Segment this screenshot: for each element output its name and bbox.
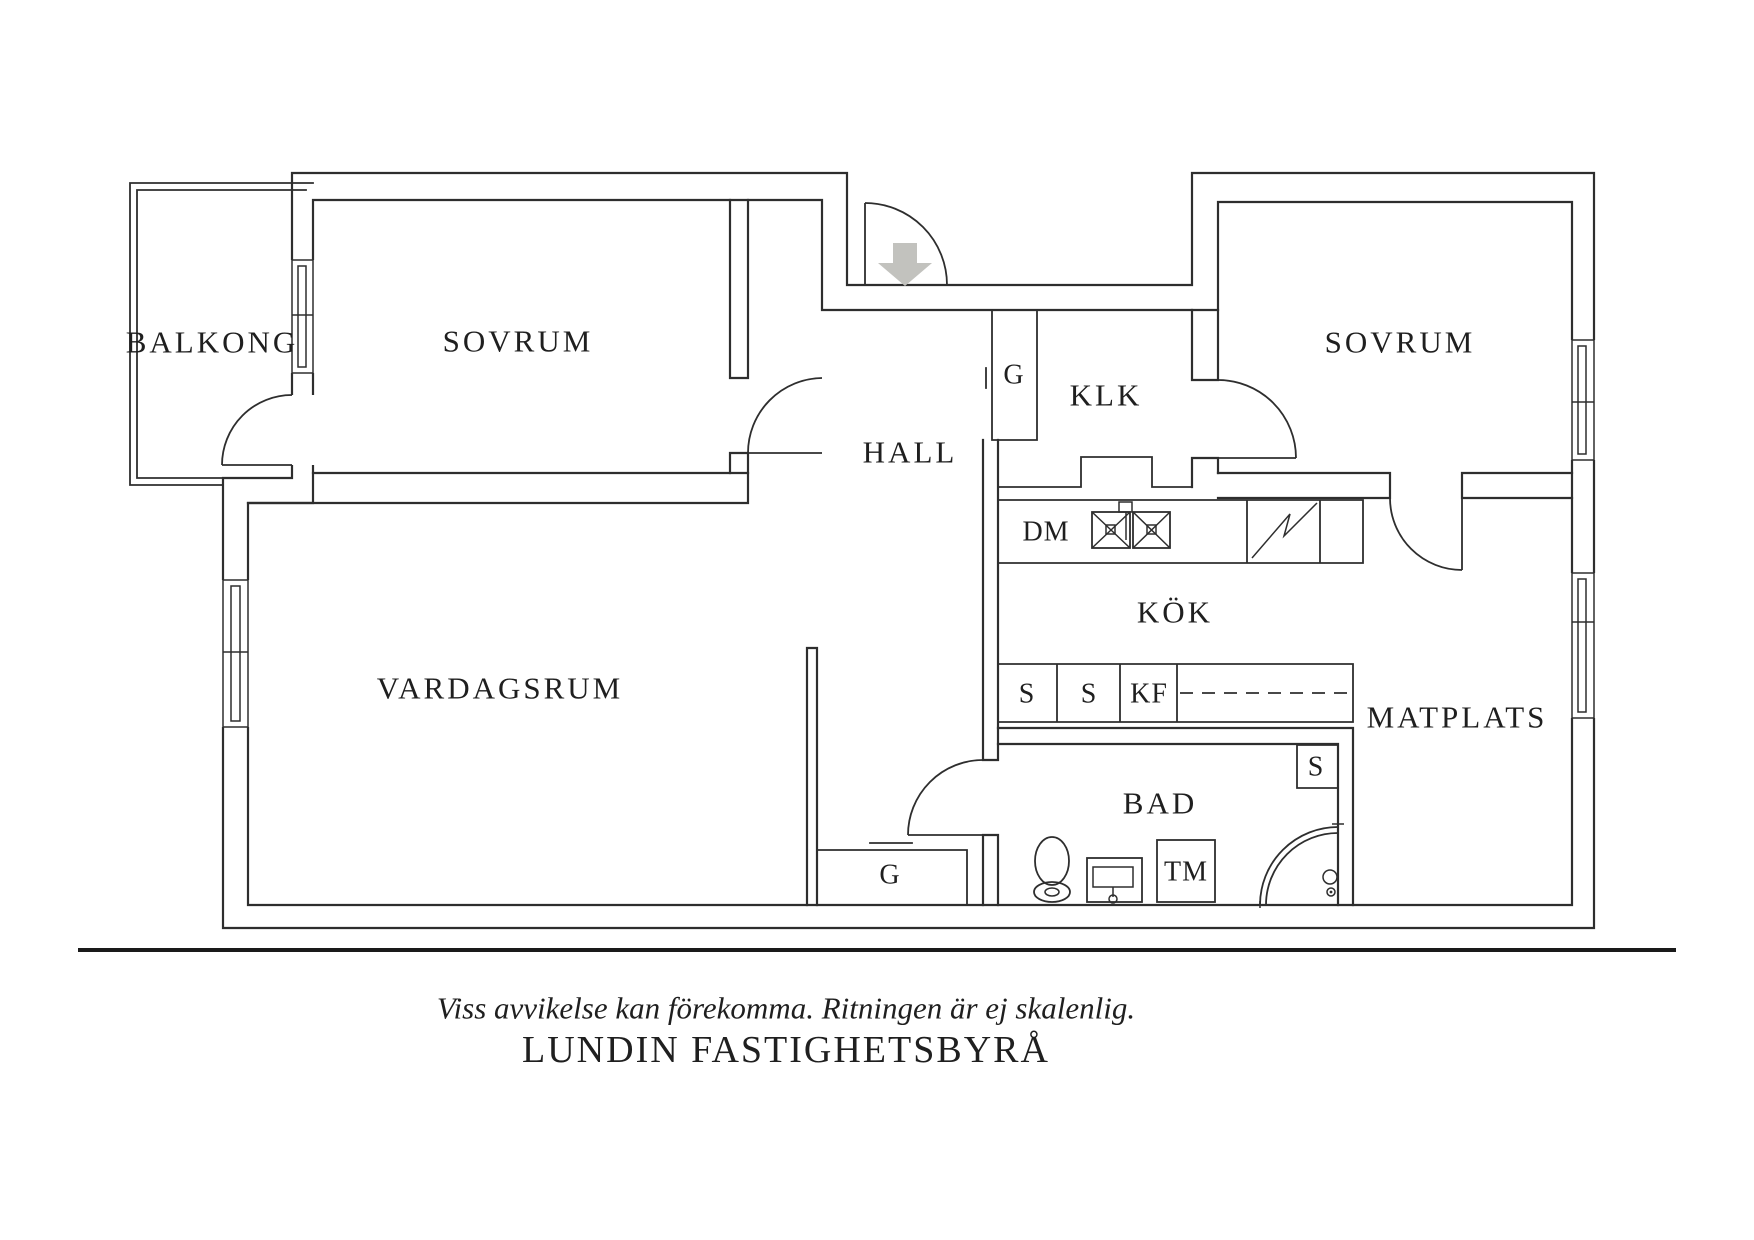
label-cabinet-2: S [1081,679,1098,710]
label-closet-hall: G [1003,360,1024,391]
label-closet-bad: S [1308,752,1325,783]
label-cabinet-1: S [1019,679,1036,710]
label-sovrum-left: SOVRUM [443,324,594,359]
label-fridge-freezer: KF [1130,679,1168,710]
label-hall: HALL [863,435,958,470]
footer-disclaimer: Viss avvikelse kan förekomma. Ritningen … [437,991,1135,1026]
label-closet-vardagsrum: G [879,860,900,891]
label-washing-machine: TM [1164,857,1208,888]
label-matplats: MATPLATS [1367,700,1548,735]
label-kok: KÖK [1137,595,1213,630]
label-bad: BAD [1123,786,1197,821]
label-klk: KLK [1070,378,1143,413]
label-vardagsrum: VARDAGSRUM [377,671,624,706]
footer-agency: LUNDIN FASTIGHETSBYRÅ [522,1029,1050,1071]
floor-plan-drawing: BALKONG SOVRUM SOVRUM HALL KLK KÖK VARDA… [0,0,1754,1240]
label-dishwasher: DM [1022,517,1069,548]
label-sovrum-right: SOVRUM [1325,325,1476,360]
floor-plan: BALKONG SOVRUM SOVRUM HALL KLK KÖK VARDA… [0,0,1754,1240]
label-balkong: BALKONG [126,325,299,360]
